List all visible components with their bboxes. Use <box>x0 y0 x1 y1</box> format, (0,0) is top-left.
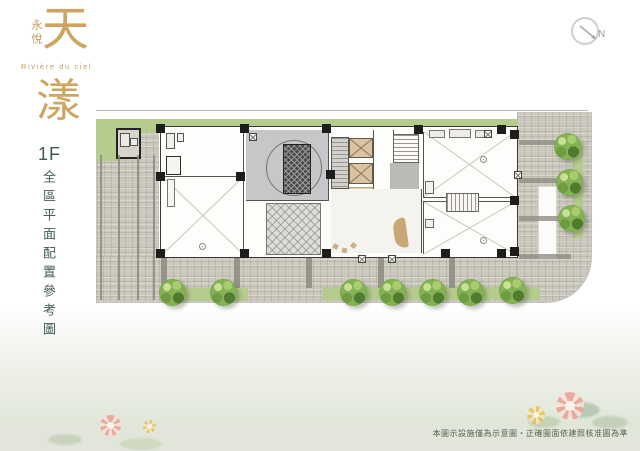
unit-stairs <box>446 193 479 212</box>
stairwell-1 <box>331 137 349 189</box>
bathroom-fixture <box>425 181 434 194</box>
column <box>322 124 331 133</box>
column <box>156 124 165 133</box>
column-marker <box>358 255 366 263</box>
room-marker <box>480 237 487 244</box>
stair-landing <box>390 163 419 189</box>
column-marker <box>484 130 492 138</box>
paver-band <box>100 155 102 300</box>
column <box>510 130 519 139</box>
kitchen-counter <box>429 130 445 138</box>
lotus-flower-pink <box>100 415 121 436</box>
paver-band <box>137 155 139 300</box>
ramp-grille <box>266 203 321 255</box>
reception-desk <box>392 217 409 249</box>
elevator-cross <box>350 139 372 157</box>
room-marker <box>199 243 206 250</box>
brand-name-char1: 天 <box>42 6 89 53</box>
steps <box>167 179 175 207</box>
property-line <box>96 110 588 111</box>
tree <box>499 277 526 304</box>
column <box>326 170 335 179</box>
building-footprint <box>160 126 518 258</box>
lilypad <box>120 438 162 450</box>
room-cross <box>424 132 515 197</box>
brochure-page: 永悅 天 Rivière du ciel 漾 1F 全區平面配置參考圖 N <box>0 0 640 451</box>
paver-band <box>519 254 571 259</box>
paver-band <box>306 258 312 288</box>
column <box>510 196 519 205</box>
column <box>510 247 519 256</box>
column <box>156 172 165 181</box>
unit-room-a <box>423 132 515 198</box>
storage-closet <box>166 156 181 175</box>
column <box>497 125 506 134</box>
brand-name-char2: 漾 <box>36 78 81 123</box>
kitchen-counter <box>449 129 471 138</box>
paver-band <box>449 258 455 288</box>
disclaimer-text: 本圖示設施僅為示意圖‧正確圖面依建照核准圖為準 <box>433 428 629 439</box>
tree <box>419 279 446 306</box>
car-lift <box>283 144 311 194</box>
lotus-flower-pink <box>556 392 584 420</box>
wall <box>421 189 422 253</box>
tree <box>340 279 367 306</box>
column <box>156 249 165 258</box>
plan-title: 全區平面配置參考圖 <box>39 170 58 341</box>
column <box>240 249 249 258</box>
column <box>240 124 249 133</box>
column-marker <box>514 171 522 179</box>
tree <box>558 205 585 232</box>
tree <box>556 169 583 196</box>
lotus-flower-yellow <box>143 420 156 433</box>
column <box>497 249 506 258</box>
column <box>322 249 331 258</box>
lounge-chair <box>350 242 357 249</box>
lobby <box>331 189 421 253</box>
lounge-chair <box>332 243 339 250</box>
bathroom-fixture <box>425 219 434 228</box>
wall <box>373 130 374 190</box>
column <box>236 172 245 181</box>
column <box>414 125 423 134</box>
fixture <box>166 133 175 149</box>
column <box>441 249 450 258</box>
elevator-cross <box>350 164 372 183</box>
paver-band <box>234 258 240 288</box>
garage-room <box>163 177 244 254</box>
column-marker <box>249 133 257 141</box>
utility-room <box>163 130 244 177</box>
equipment <box>120 133 130 147</box>
lounge-chair <box>342 248 348 254</box>
tree <box>159 279 186 306</box>
floor-label: 1F <box>38 144 61 165</box>
tree <box>210 279 237 306</box>
compass-north-label: N <box>598 29 605 40</box>
tree <box>554 133 581 160</box>
lotus-flower-yellow <box>527 406 545 424</box>
paver-band <box>118 155 120 300</box>
paver-band <box>153 155 155 300</box>
equipment <box>130 138 138 146</box>
elevator-1 <box>349 138 373 158</box>
column-marker <box>388 255 396 263</box>
brand-tagline: Rivière du ciel <box>21 62 92 71</box>
elevator-2 <box>349 163 373 184</box>
tree <box>379 279 406 306</box>
parking-stall <box>538 186 557 260</box>
tree <box>457 279 484 306</box>
room-marker <box>480 156 487 163</box>
lilypad <box>48 434 82 445</box>
fixture <box>177 133 184 142</box>
stairwell-2 <box>393 134 419 163</box>
